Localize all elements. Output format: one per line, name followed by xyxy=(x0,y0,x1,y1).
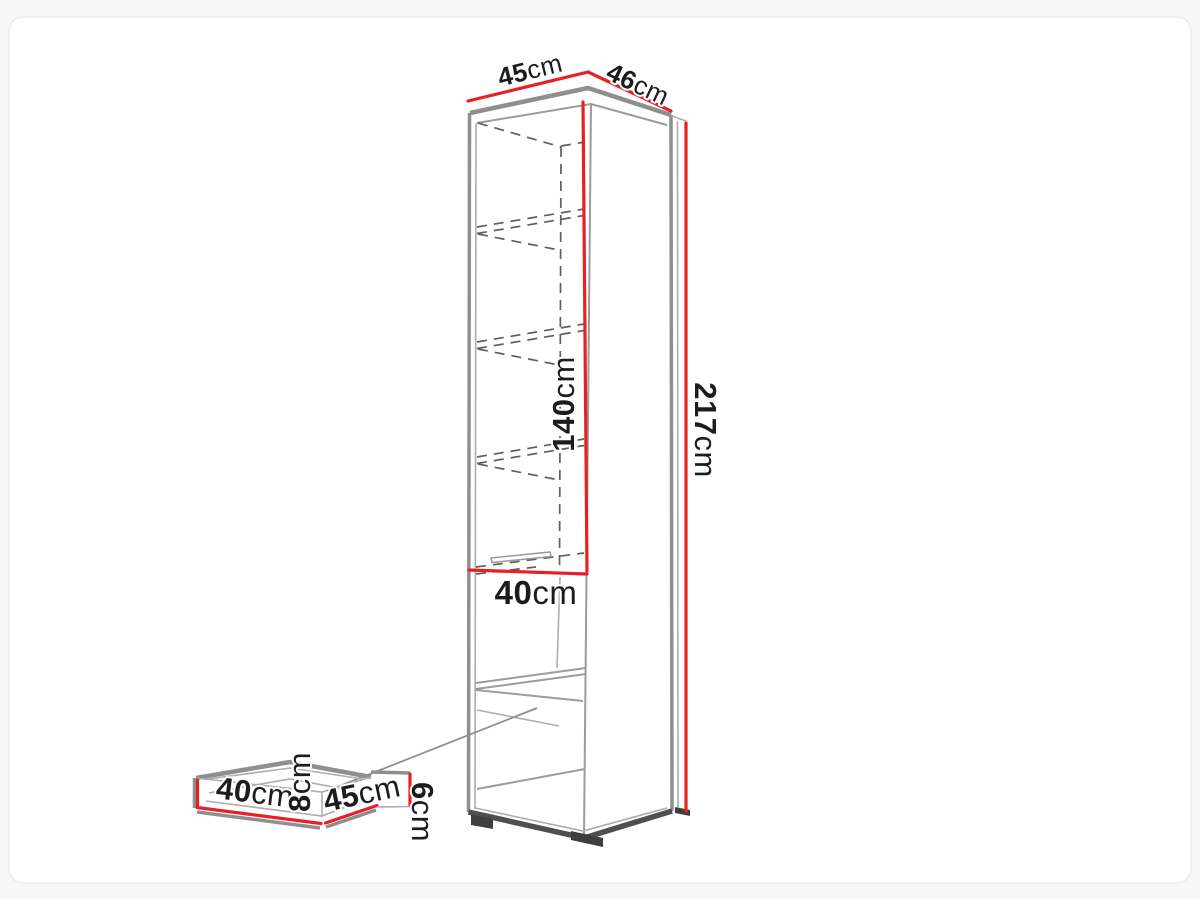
label-insert-side-height: 6cm xyxy=(405,782,440,842)
label-insert-front-height: 8cm xyxy=(282,752,317,812)
cabinet-back-right-edge xyxy=(671,115,672,811)
label-interior-height: 140cm xyxy=(546,356,581,452)
cabinet-back-right-inner-edge xyxy=(678,121,679,809)
product-dimension-image: 45cm 46cm 217cm 140cm 40cm 40cm 45cm 8cm… xyxy=(0,0,1200,899)
cabinet-front-left-edge xyxy=(469,113,470,812)
image-card xyxy=(9,17,1191,883)
label-interior-width: 40cm xyxy=(495,574,578,611)
label-total-height: 217cm xyxy=(688,382,723,478)
cabinet-front-left-inner-edge xyxy=(475,123,476,809)
furniture-dimension-diagram: 45cm 46cm 217cm 140cm 40cm 40cm 45cm 8cm… xyxy=(0,0,1200,899)
